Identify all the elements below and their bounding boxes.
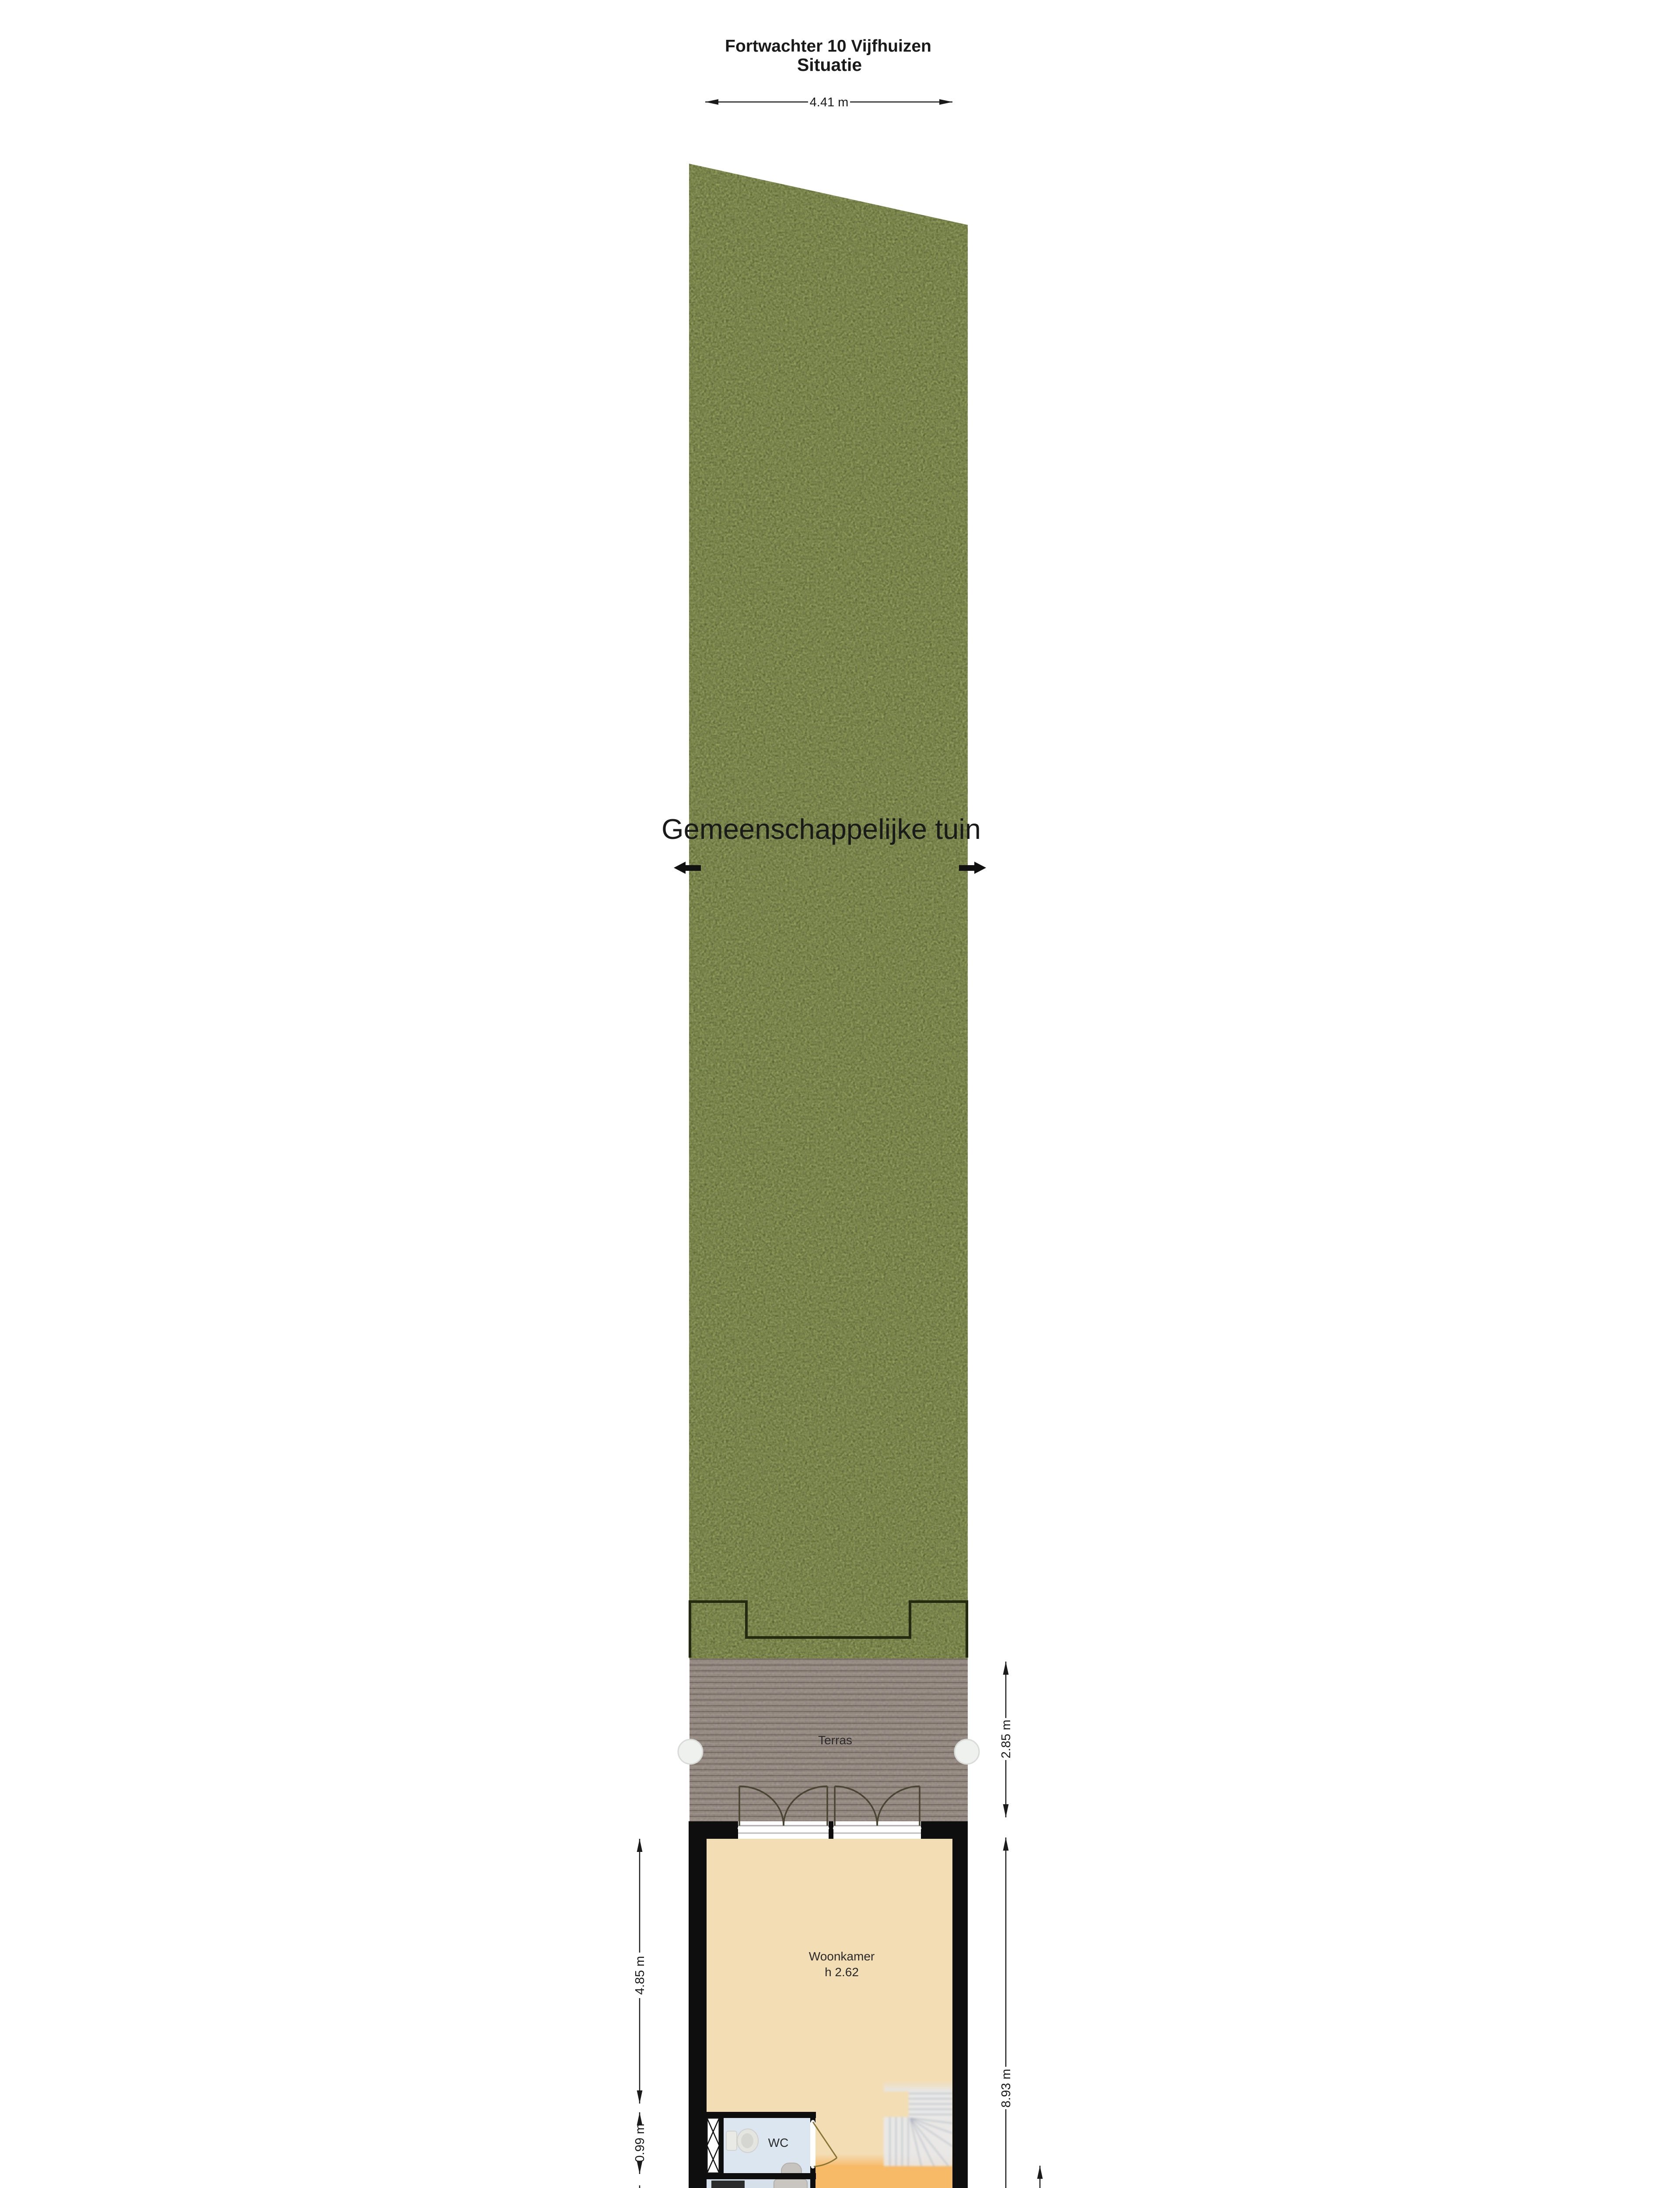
- svg-text:Terras: Terras: [818, 1733, 852, 1747]
- svg-text:2.85 m: 2.85 m: [999, 1720, 1013, 1759]
- svg-text:Woonkamer: Woonkamer: [809, 1950, 875, 1963]
- svg-text:Fortwachter 10 Vijfhuizen: Fortwachter 10 Vijfhuizen: [725, 37, 931, 56]
- svg-text:Gemeenschappelijke tuin: Gemeenschappelijke tuin: [661, 813, 981, 845]
- svg-text:4.85 m: 4.85 m: [633, 1956, 647, 1995]
- svg-text:WC: WC: [768, 2136, 789, 2149]
- svg-text:4.41 m: 4.41 m: [810, 95, 849, 109]
- svg-text:0.99 m: 0.99 m: [633, 2124, 647, 2163]
- svg-text:Situatie: Situatie: [797, 55, 862, 75]
- svg-text:h 2.62: h 2.62: [825, 1965, 859, 1979]
- svg-text:8.93 m: 8.93 m: [999, 2069, 1013, 2108]
